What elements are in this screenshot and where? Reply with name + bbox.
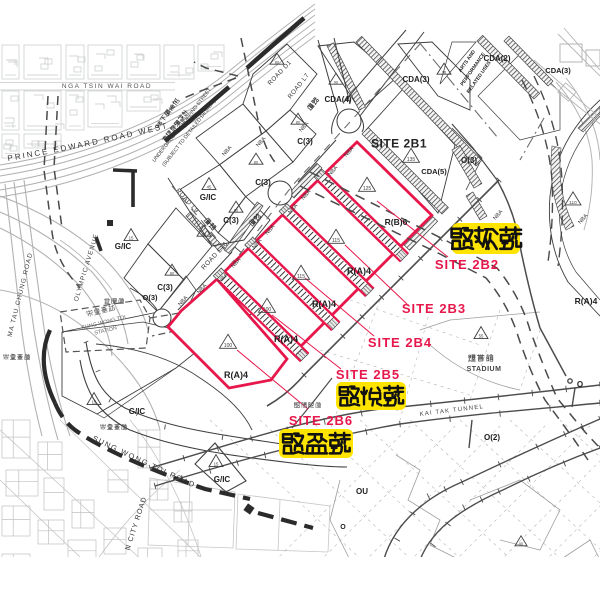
- svg-text:NGA TSIN WAI ROAD: NGA TSIN WAI ROAD: [62, 83, 152, 90]
- svg-text:55: 55: [479, 334, 484, 339]
- svg-text:R(B)6: R(B)6: [385, 217, 408, 227]
- svg-text:R(A)4: R(A)4: [274, 334, 298, 344]
- svg-text:CDA(3): CDA(3): [545, 66, 571, 75]
- svg-text:R(A)4: R(A)4: [575, 296, 598, 306]
- svg-text:15: 15: [214, 462, 219, 467]
- svg-text:SITE 2B6: SITE 2B6: [289, 413, 353, 428]
- svg-text:125: 125: [363, 186, 372, 192]
- svg-text:SITE 2B2: SITE 2B2: [435, 257, 499, 272]
- svg-text:C(3): C(3): [223, 216, 239, 225]
- svg-text:C(3): C(3): [255, 178, 271, 187]
- svg-text:CDA(3): CDA(3): [402, 75, 429, 84]
- svg-text:O(2): O(2): [484, 433, 500, 442]
- svg-text:55: 55: [519, 542, 523, 546]
- svg-text:SITE 2B5: SITE 2B5: [336, 367, 400, 382]
- svg-text:C(3): C(3): [297, 137, 313, 146]
- svg-text:O(3): O(3): [461, 156, 477, 165]
- svg-text:OU: OU: [356, 487, 368, 496]
- svg-text:15: 15: [92, 400, 97, 405]
- svg-text:110: 110: [569, 200, 577, 205]
- svg-text:O(3): O(3): [143, 293, 159, 302]
- svg-text:CDA(5): CDA(5): [421, 167, 447, 176]
- svg-text:R(A)4: R(A)4: [312, 299, 336, 309]
- svg-text:15: 15: [129, 236, 134, 241]
- svg-text:STADIUM: STADIUM: [467, 366, 502, 373]
- svg-text:G/IC: G/IC: [129, 407, 146, 416]
- svg-text:G/IC: G/IC: [200, 193, 217, 202]
- svg-text:135: 135: [407, 157, 416, 163]
- svg-text:115: 115: [332, 238, 340, 244]
- svg-text:SITE 2B4: SITE 2B4: [368, 335, 432, 350]
- svg-text:O: O: [340, 524, 346, 531]
- svg-text:45: 45: [207, 185, 212, 190]
- svg-text:G/IC: G/IC: [115, 242, 132, 251]
- svg-text:SITE 2B1: SITE 2B1: [371, 137, 427, 151]
- svg-text:100: 100: [224, 343, 233, 349]
- svg-text:R(A)4: R(A)4: [347, 266, 371, 276]
- svg-text:SITE 2B3: SITE 2B3: [402, 301, 466, 316]
- svg-text:R(A)4: R(A)4: [224, 370, 248, 380]
- svg-text:G/IC: G/IC: [214, 475, 231, 484]
- svg-text:C(3): C(3): [157, 283, 173, 292]
- svg-text:100: 100: [263, 307, 272, 313]
- svg-text:O: O: [577, 380, 583, 389]
- svg-text:115: 115: [297, 274, 305, 280]
- svg-text:CDA(4): CDA(4): [324, 95, 351, 104]
